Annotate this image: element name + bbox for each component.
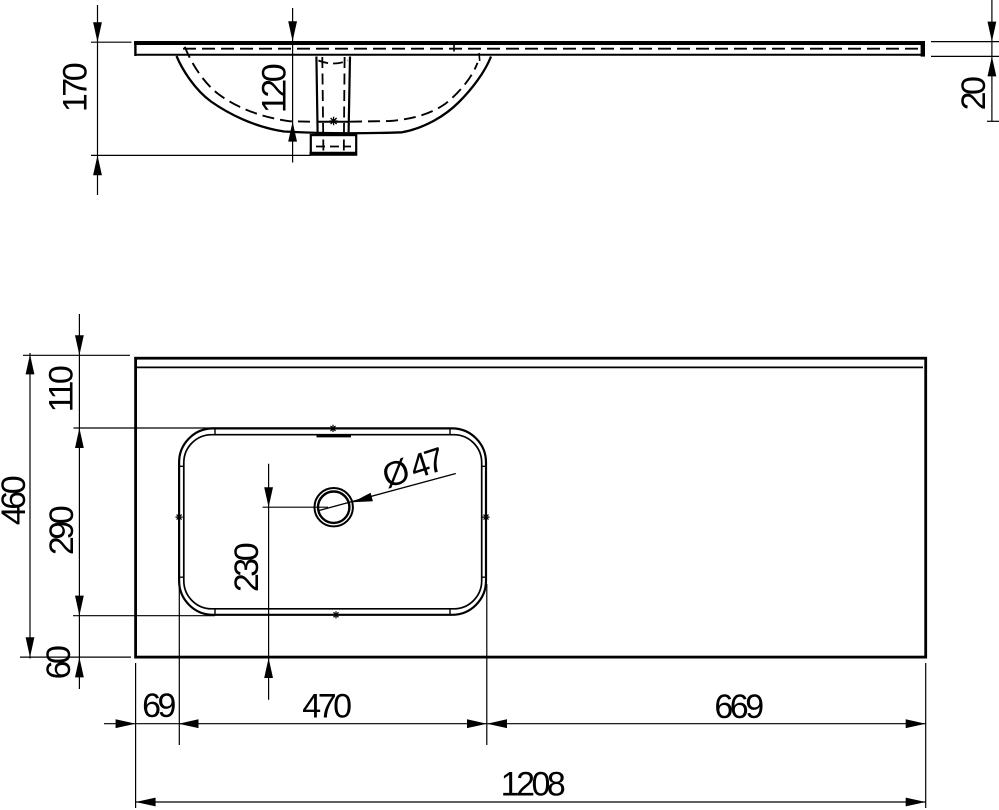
svg-text:69: 69 xyxy=(142,687,175,725)
svg-text:230: 230 xyxy=(228,543,266,592)
svg-text:120: 120 xyxy=(256,64,294,113)
svg-text:20: 20 xyxy=(955,77,993,110)
svg-text:460: 460 xyxy=(0,476,33,525)
svg-text:290: 290 xyxy=(43,506,81,555)
svg-text:470: 470 xyxy=(302,688,351,726)
svg-text:170: 170 xyxy=(57,63,95,112)
svg-text:1208: 1208 xyxy=(501,766,565,804)
svg-text:110: 110 xyxy=(43,366,81,412)
svg-text:669: 669 xyxy=(714,688,763,726)
svg-text:60: 60 xyxy=(40,646,78,679)
